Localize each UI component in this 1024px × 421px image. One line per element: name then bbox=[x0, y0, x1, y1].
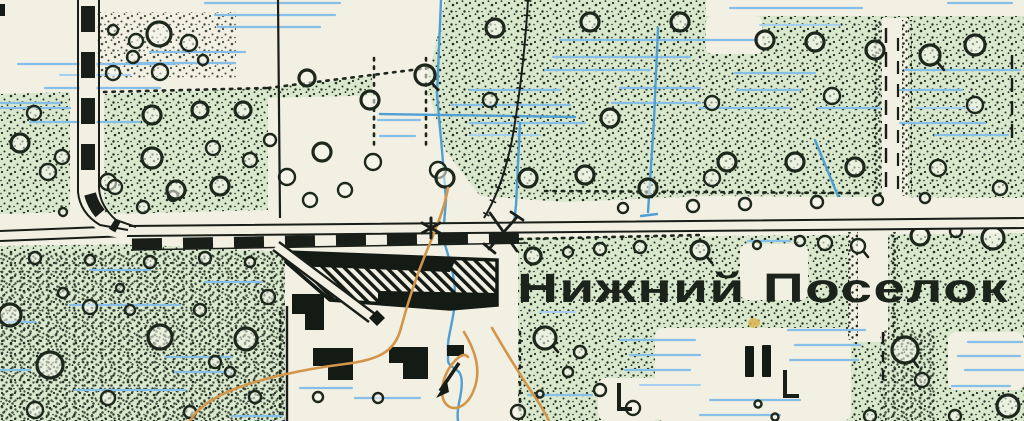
paper-stain bbox=[748, 318, 760, 328]
bar-symbol bbox=[762, 345, 771, 377]
settlement-label: Нижний Поселок bbox=[517, 265, 1009, 311]
topographic-map-canvas: Нижний Поселок bbox=[0, 0, 1024, 421]
bar-symbol bbox=[745, 346, 754, 377]
